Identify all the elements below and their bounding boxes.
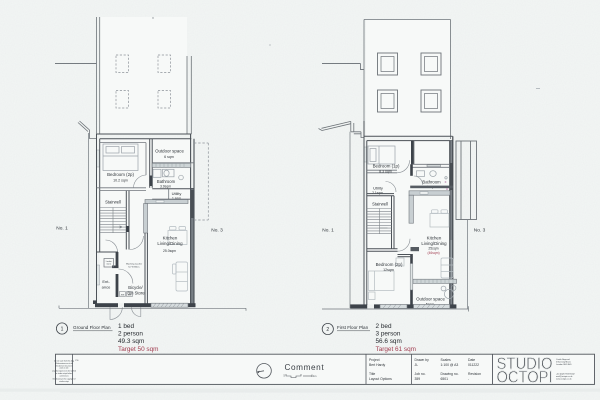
svg-text:No. 3: No. 3 (474, 228, 486, 234)
svg-text:Layout Options: Layout Options (369, 377, 392, 381)
svg-text:1: 1 (61, 327, 64, 333)
svg-text:3.9sqm: 3.9sqm (160, 185, 171, 189)
svg-text:6501: 6501 (441, 377, 449, 381)
svg-text:10.2 sqm: 10.2 sqm (113, 179, 128, 183)
svg-text:Washing washer: Washing washer (126, 263, 142, 266)
svg-text:Utility: Utility (373, 186, 383, 191)
svg-text:studio octopi: studio octopi (59, 380, 69, 383)
svg-text:OCTOPI: OCTOPI (497, 369, 553, 387)
svg-text:1m: 1m (313, 375, 316, 378)
svg-text:3 person: 3 person (376, 331, 401, 338)
svg-text:2: 2 (326, 327, 329, 333)
svg-text:for W Bikes: for W Bikes (128, 265, 140, 268)
svg-text:JL: JL (415, 363, 419, 367)
svg-text:Revision: Revision (468, 372, 481, 376)
svg-text:Stairwell: Stairwell (372, 202, 388, 207)
svg-text:6 sqm: 6 sqm (164, 155, 174, 159)
svg-text:49.3 sqm: 49.3 sqm (118, 338, 144, 345)
svg-text:Bedroom (1p): Bedroom (1p) (373, 164, 400, 169)
svg-text:Outdoor space: Outdoor space (155, 149, 184, 154)
svg-text:2.1sqm: 2.1sqm (372, 191, 383, 195)
svg-text:Utility: Utility (172, 191, 182, 196)
svg-text:Bedroom (2p): Bedroom (2p) (107, 172, 134, 177)
svg-text:JNB: JNB (128, 294, 132, 296)
svg-text:25.0sqm: 25.0sqm (163, 249, 176, 253)
svg-text:Living/Dining: Living/Dining (157, 241, 183, 246)
svg-text:No. 1: No. 1 (56, 226, 68, 232)
svg-text:011222: 011222 (468, 363, 479, 367)
svg-text:(46sqm): (46sqm) (427, 251, 439, 255)
svg-text:Drawing no.: Drawing no. (441, 372, 459, 376)
svg-text:Larder: Larder (106, 260, 112, 263)
svg-text:2 bed: 2 bed (376, 323, 392, 330)
svg-text:ance: ance (102, 285, 111, 290)
svg-text:work on site: work on site (59, 367, 68, 370)
svg-text:Bedroom (2p): Bedroom (2p) (376, 262, 403, 267)
svg-text:Drawn by: Drawn by (415, 358, 430, 362)
svg-text:No. 1: No. 1 (322, 228, 334, 234)
svg-text:www.octopi.co.uk: www.octopi.co.uk (556, 378, 571, 381)
svg-text:56.6 sqm: 56.6 sqm (376, 338, 402, 345)
svg-text:London SE1 6HD: London SE1 6HD (556, 364, 572, 366)
svg-text:commences: commences (59, 375, 68, 377)
svg-text:JNB: JNB (121, 294, 125, 296)
svg-text:1 bed: 1 bed (118, 323, 134, 330)
svg-text:359: 359 (415, 377, 421, 381)
svg-text:Target 61 sqm: Target 61 sqm (376, 346, 417, 353)
svg-text:Outdoor space: Outdoor space (416, 297, 445, 302)
svg-text:Bicycle/: Bicycle/ (128, 285, 143, 290)
svg-text:Stairwell: Stairwell (105, 200, 121, 205)
svg-text:Comment: Comment (285, 363, 325, 372)
svg-text:Title: Title (369, 372, 375, 376)
svg-text:12sqm: 12sqm (383, 268, 394, 272)
svg-text:1:100 @ A3: 1:100 @ A3 (441, 363, 459, 367)
svg-text:Ent-: Ent- (102, 279, 110, 284)
svg-text:-: - (468, 377, 469, 381)
svg-text:mail@octopi.co.uk: mail@octopi.co.uk (556, 375, 572, 378)
svg-text:First Floor Plan: First Floor Plan (337, 325, 369, 330)
svg-text:Scales: Scales (441, 358, 451, 362)
svg-text:No. 3: No. 3 (211, 228, 223, 234)
svg-text:8.3 sqm: 8.3 sqm (379, 170, 392, 174)
svg-text:Bathroom: Bathroom (422, 180, 441, 185)
svg-text:Ground Floor Plan: Ground Floor Plan (73, 325, 111, 330)
svg-text:Date: Date (468, 358, 475, 362)
svg-text:Target 50 sqm: Target 50 sqm (118, 346, 159, 353)
svg-text:Job no.: Job no. (415, 372, 426, 376)
svg-text:Living/Dining: Living/Dining (421, 241, 447, 246)
svg-text:2 person: 2 person (118, 331, 143, 338)
svg-text:Castle Baynard: Castle Baynard (556, 358, 570, 361)
svg-text:Bert Hardy: Bert Hardy (369, 363, 386, 367)
svg-text:Project: Project (369, 358, 380, 362)
svg-text:Kitchen: Kitchen (427, 236, 442, 241)
svg-text:Bathroom: Bathroom (157, 179, 176, 184)
svg-text:Kitchen: Kitchen (163, 236, 178, 241)
